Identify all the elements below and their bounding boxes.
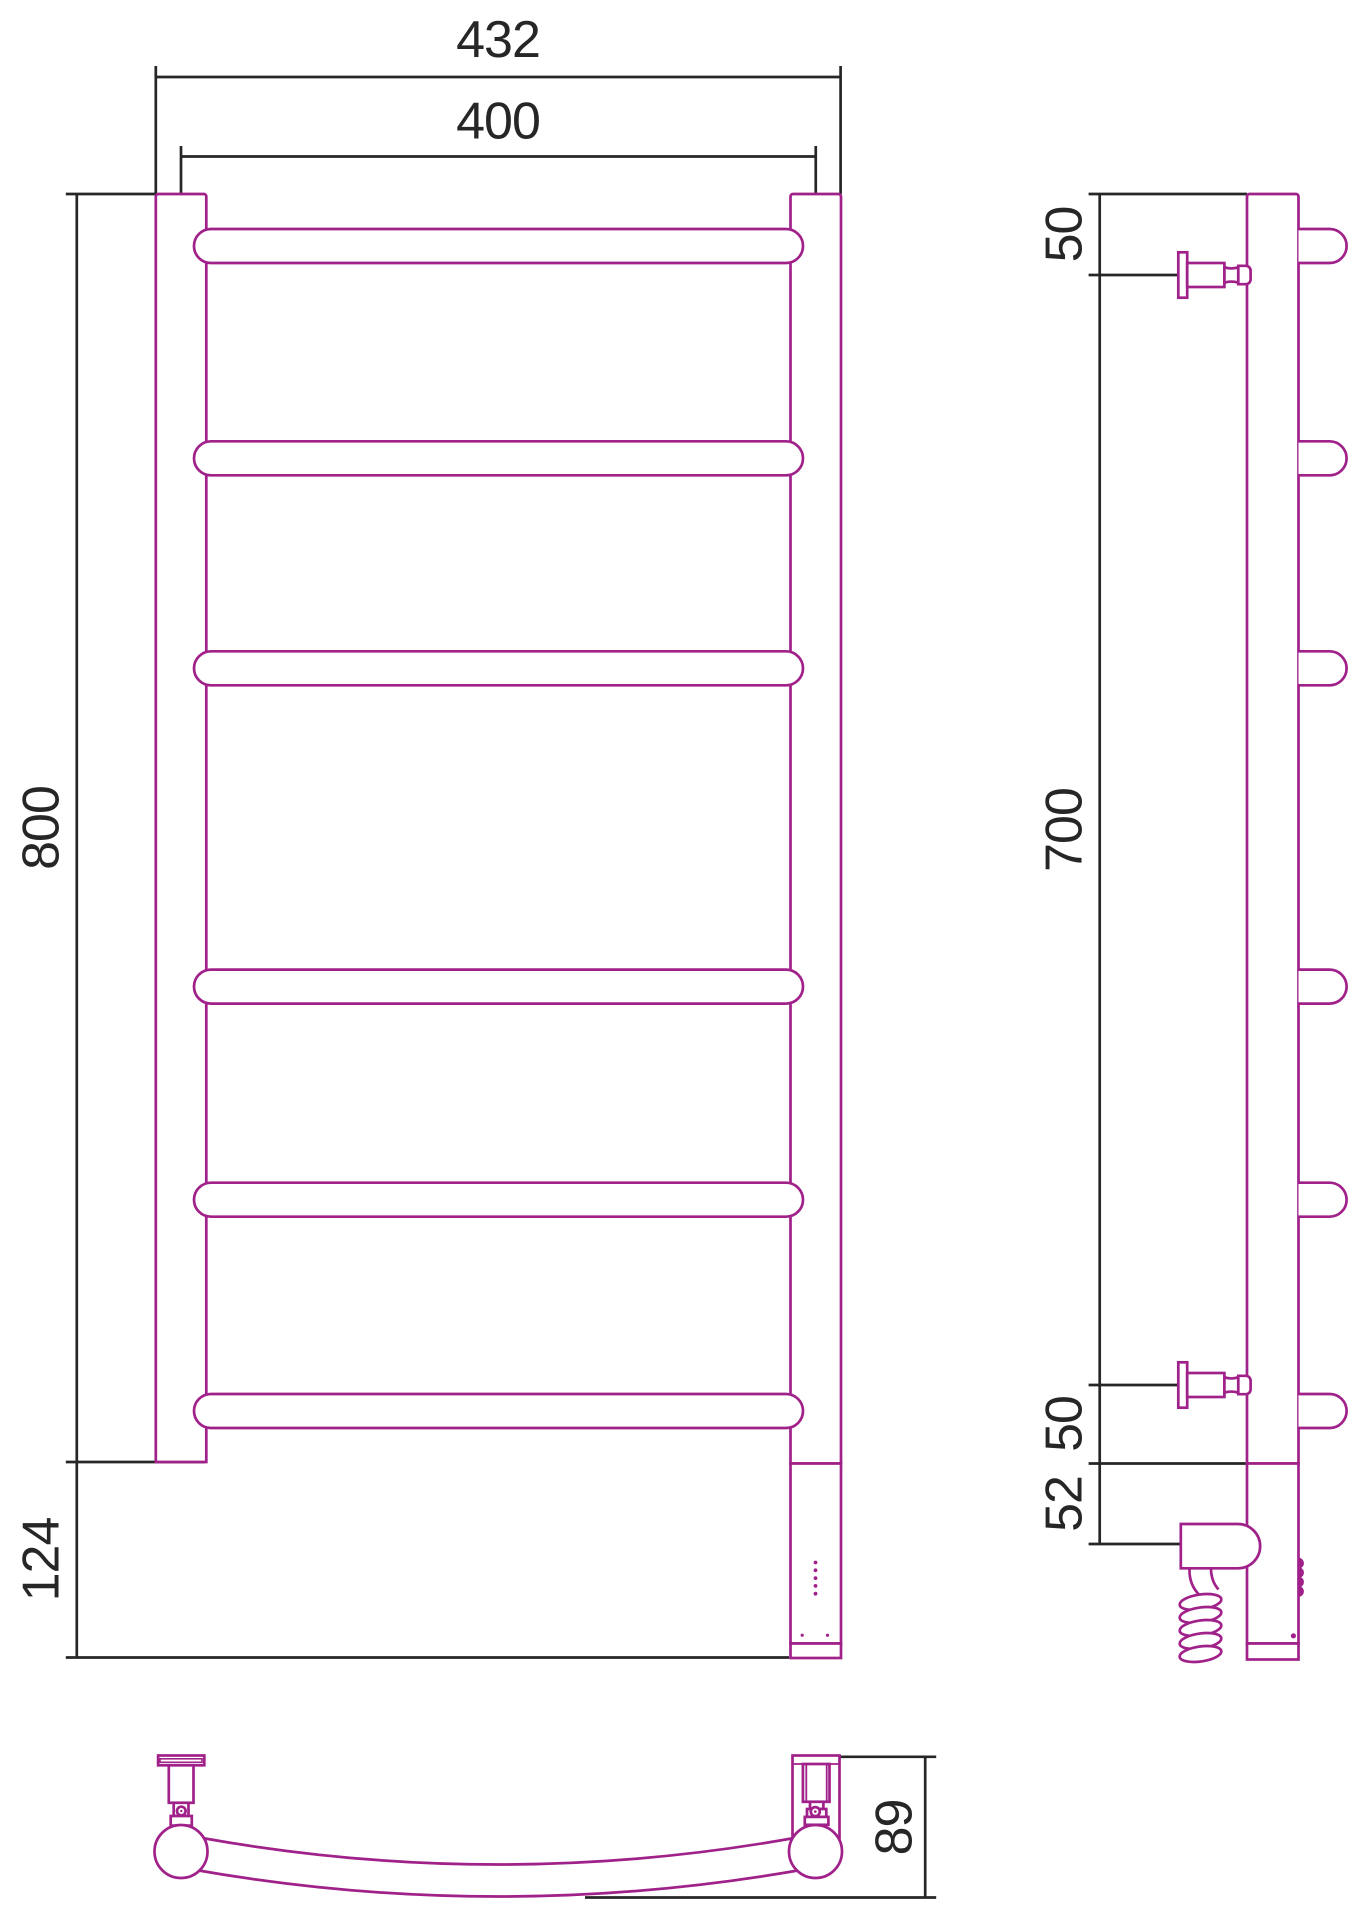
svg-text:400: 400 [456, 93, 540, 151]
svg-text:800: 800 [13, 786, 71, 870]
svg-text:432: 432 [456, 11, 540, 69]
svg-text:50: 50 [1036, 1396, 1094, 1452]
svg-text:700: 700 [1036, 788, 1094, 872]
svg-text:52: 52 [1036, 1476, 1094, 1532]
svg-text:89: 89 [866, 1800, 924, 1856]
svg-text:50: 50 [1036, 207, 1094, 263]
svg-text:124: 124 [13, 1518, 71, 1602]
